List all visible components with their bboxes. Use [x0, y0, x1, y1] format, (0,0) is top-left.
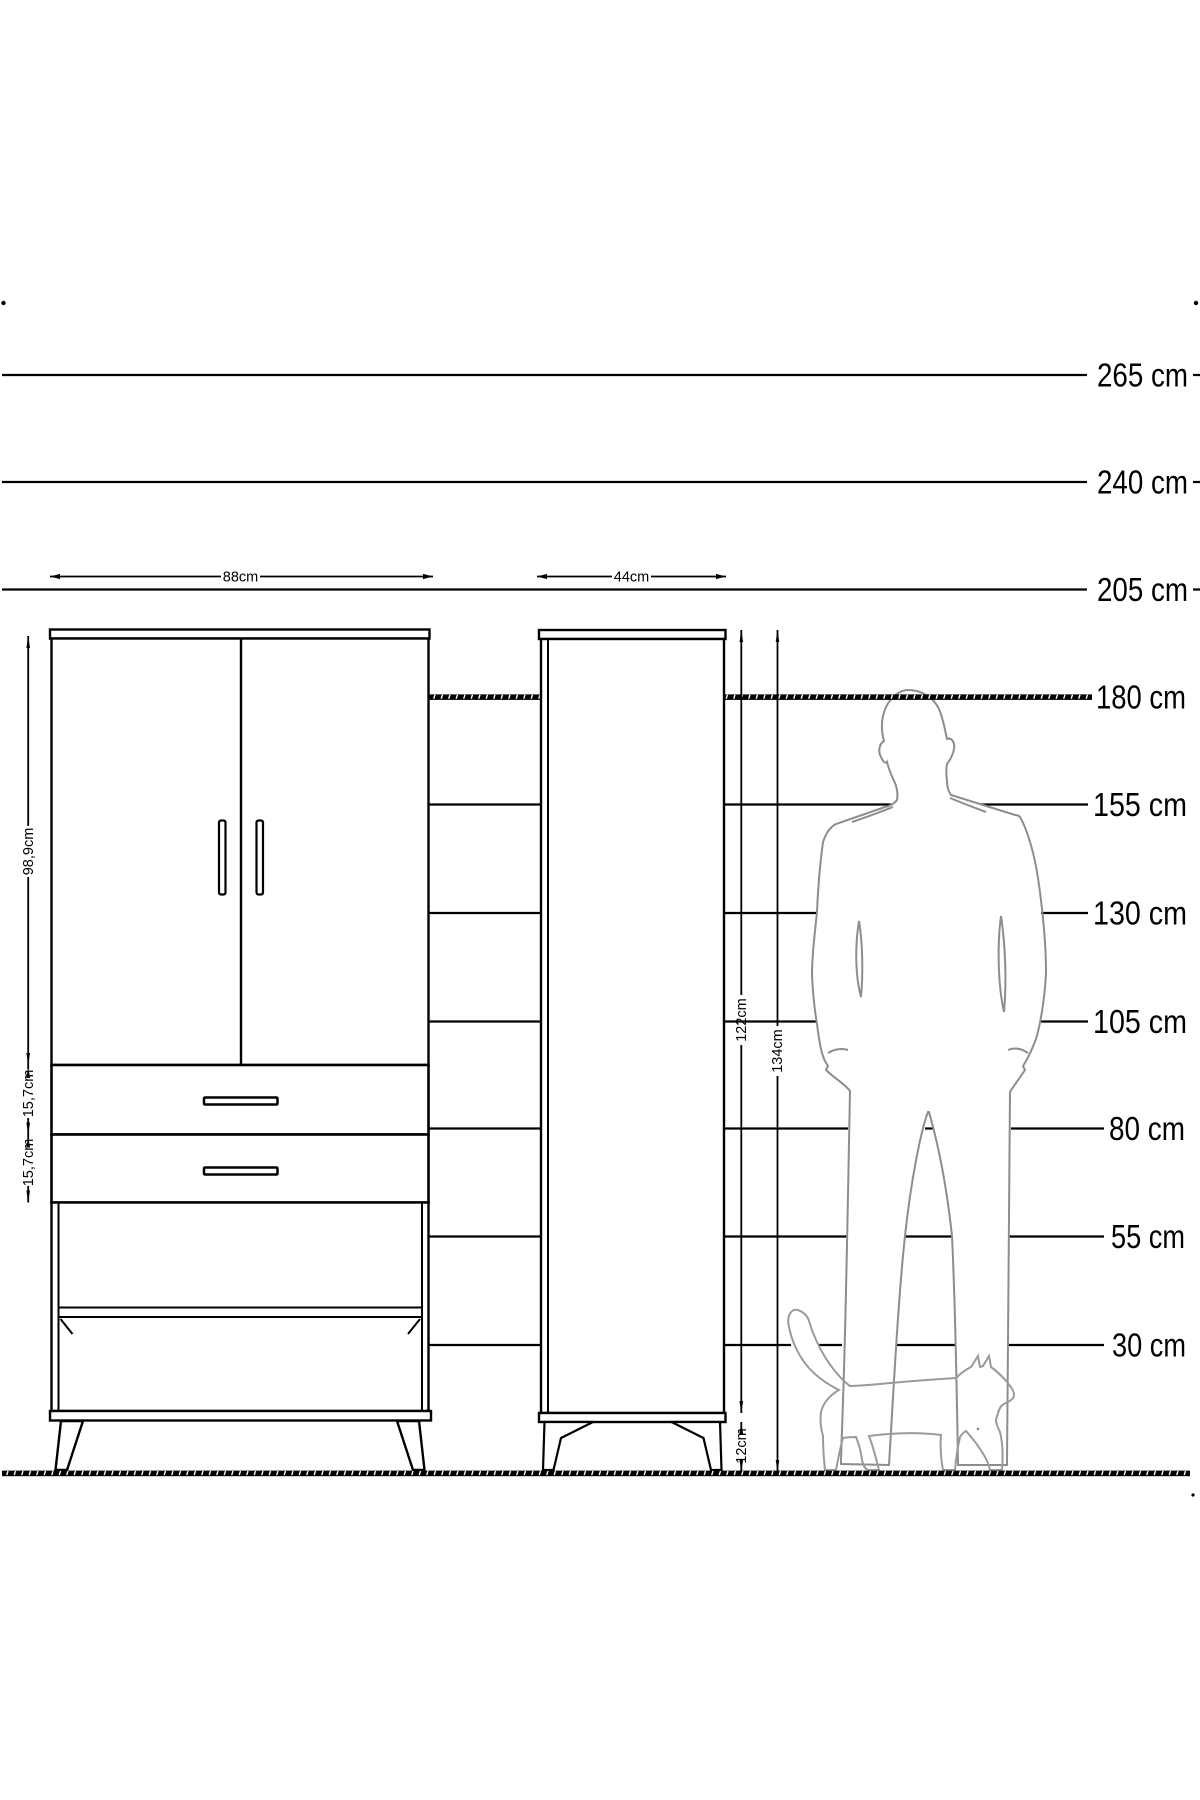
svg-text:205 cm: 205 cm: [1097, 571, 1188, 608]
svg-text:88cm: 88cm: [223, 570, 258, 586]
svg-text:155 cm: 155 cm: [1093, 786, 1187, 823]
svg-text:44cm: 44cm: [614, 570, 649, 586]
svg-text:12cm: 12cm: [734, 1428, 750, 1463]
svg-text:265 cm: 265 cm: [1097, 357, 1188, 394]
svg-text:15,7cm: 15,7cm: [21, 1070, 37, 1118]
svg-text:55 cm: 55 cm: [1111, 1218, 1185, 1255]
svg-text:180 cm: 180 cm: [1096, 679, 1186, 716]
svg-text:130 cm: 130 cm: [1093, 895, 1187, 932]
svg-text:80 cm: 80 cm: [1109, 1110, 1185, 1147]
svg-text:15,7cm: 15,7cm: [21, 1139, 37, 1187]
svg-text:122cm: 122cm: [734, 998, 750, 1042]
svg-text:134cm: 134cm: [770, 1029, 786, 1073]
svg-text:30 cm: 30 cm: [1112, 1327, 1186, 1364]
svg-text:98,9cm: 98,9cm: [21, 828, 37, 876]
svg-text:105 cm: 105 cm: [1093, 1003, 1187, 1040]
svg-text:240 cm: 240 cm: [1097, 464, 1188, 501]
